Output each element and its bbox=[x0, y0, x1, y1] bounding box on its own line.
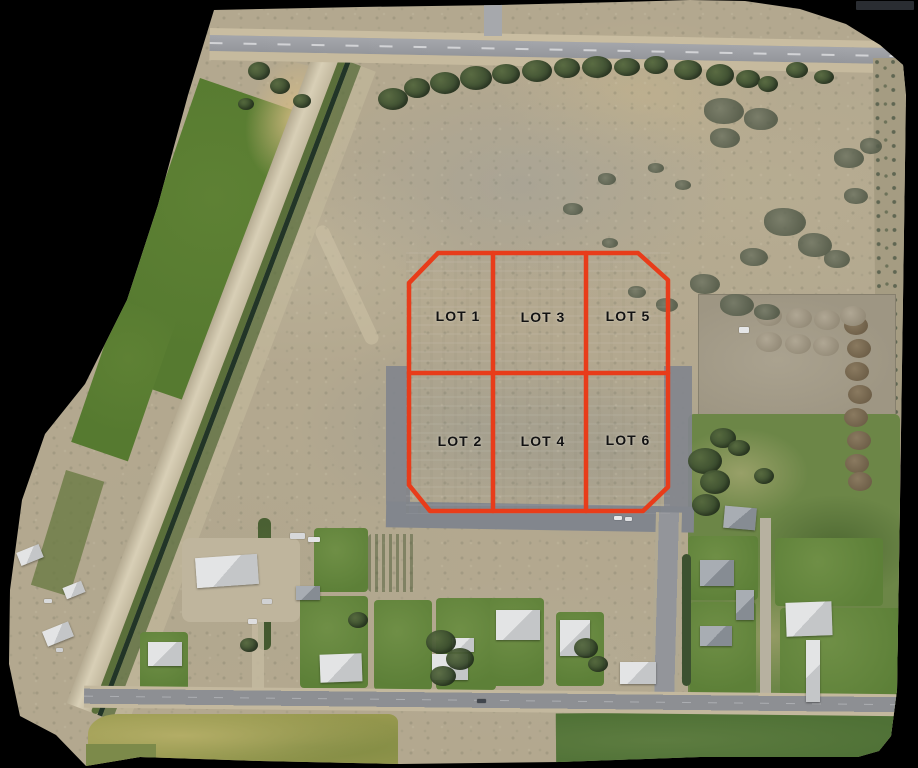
lot-label-1: LOT 1 bbox=[436, 309, 481, 323]
aerial-photo-canvas: LOT 1 LOT 2 LOT 3 LOT 4 LOT 5 LOT 6 bbox=[0, 0, 918, 768]
lot-label-6: LOT 6 bbox=[606, 433, 651, 447]
lot-label-5: LOT 5 bbox=[606, 309, 651, 323]
watermark bbox=[856, 1, 914, 10]
orthomosaic-photo: LOT 1 LOT 2 LOT 3 LOT 4 LOT 5 LOT 6 bbox=[0, 0, 918, 768]
lot-label-4: LOT 4 bbox=[521, 434, 566, 448]
lot-outer-boundary bbox=[409, 253, 668, 511]
lot-label-3: LOT 3 bbox=[521, 310, 566, 324]
lot-label-2: LOT 2 bbox=[438, 434, 483, 448]
lot-boundary-grid bbox=[0, 0, 918, 768]
